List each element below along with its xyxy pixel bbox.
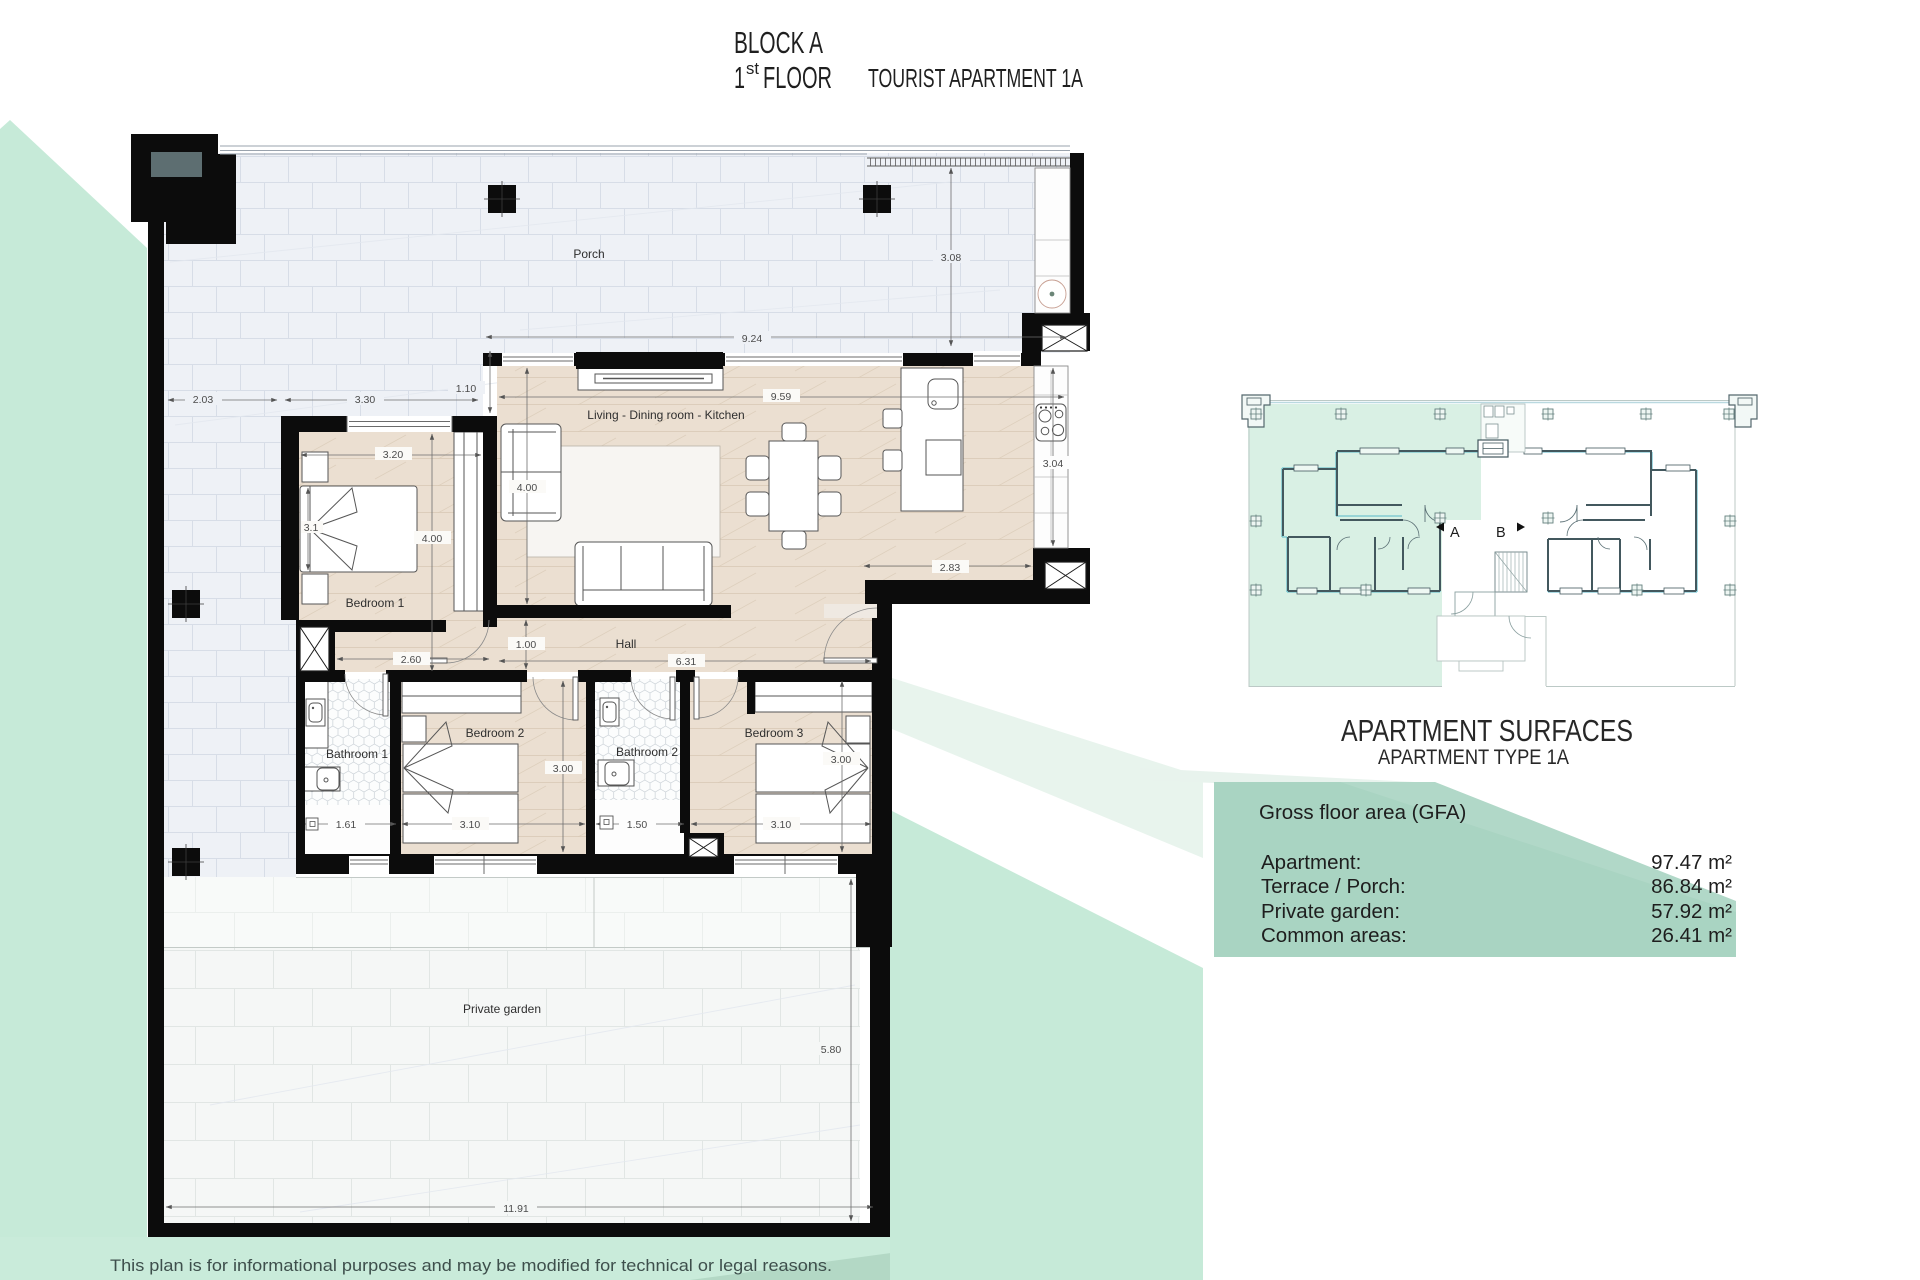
svg-text:This plan is for informational: This plan is for informational purposes … (110, 1256, 832, 1275)
svg-text:5.80: 5.80 (821, 1044, 842, 1056)
svg-text:1.50: 1.50 (627, 819, 648, 831)
svg-text:Apartment:: Apartment: (1261, 851, 1361, 874)
svg-text:st: st (746, 59, 759, 78)
svg-text:2.83: 2.83 (940, 562, 961, 574)
svg-text:2.60: 2.60 (401, 654, 422, 666)
svg-text:1.61: 1.61 (336, 819, 357, 831)
svg-text:Bedroom 2: Bedroom 2 (466, 726, 525, 740)
svg-text:Bathroom 2: Bathroom 2 (616, 745, 678, 759)
svg-text:B: B (1496, 525, 1506, 541)
svg-text:2.03: 2.03 (193, 394, 214, 406)
svg-text:Porch: Porch (573, 247, 604, 261)
svg-text:4.00: 4.00 (517, 482, 538, 494)
svg-text:6.31: 6.31 (676, 656, 697, 668)
svg-text:APARTMENT SURFACES: APARTMENT SURFACES (1341, 714, 1633, 748)
svg-text:86.84 m²: 86.84 m² (1651, 875, 1732, 898)
svg-text:APARTMENT TYPE 1A: APARTMENT TYPE 1A (1378, 745, 1570, 769)
svg-text:Bedroom 1: Bedroom 1 (346, 596, 405, 610)
svg-text:4.00: 4.00 (422, 533, 443, 545)
svg-text:Private garden: Private garden (463, 1002, 541, 1016)
svg-text:97.47 m²: 97.47 m² (1651, 851, 1732, 874)
svg-text:3.00: 3.00 (831, 754, 852, 766)
svg-text:57.92 m²: 57.92 m² (1651, 900, 1732, 923)
svg-text:1.00: 1.00 (516, 639, 537, 651)
svg-text:26.41 m²: 26.41 m² (1651, 924, 1732, 947)
svg-text:A: A (1450, 525, 1460, 541)
svg-text:TOURIST APARTMENT 1A: TOURIST APARTMENT 1A (868, 63, 1083, 93)
svg-text:Bedroom 3: Bedroom 3 (745, 726, 804, 740)
svg-text:Living - Dining room - Kitchen: Living - Dining room - Kitchen (587, 408, 744, 422)
svg-text:3.10: 3.10 (460, 819, 481, 831)
svg-text:3.1: 3.1 (304, 522, 319, 534)
svg-text:3.04: 3.04 (1043, 458, 1064, 470)
svg-text:3.10: 3.10 (771, 819, 792, 831)
svg-text:11.91: 11.91 (503, 1203, 529, 1215)
svg-text:Gross floor area (GFA): Gross floor area (GFA) (1259, 801, 1466, 824)
svg-text:3.08: 3.08 (941, 252, 962, 264)
svg-text:FLOOR: FLOOR (763, 60, 832, 95)
svg-text:3.20: 3.20 (383, 449, 404, 461)
svg-text:Hall: Hall (616, 637, 637, 651)
svg-text:1: 1 (734, 60, 745, 95)
svg-text:Common areas:: Common areas: (1261, 924, 1407, 947)
svg-text:9.59: 9.59 (771, 391, 792, 403)
svg-text:BLOCK A: BLOCK A (734, 25, 823, 60)
svg-text:3.30: 3.30 (355, 394, 376, 406)
svg-text:Bathroom 1: Bathroom 1 (326, 747, 388, 761)
svg-text:1.10: 1.10 (456, 383, 477, 395)
svg-text:9.24: 9.24 (742, 333, 763, 345)
svg-text:3.00: 3.00 (553, 763, 574, 775)
svg-text:Private garden:: Private garden: (1261, 900, 1400, 923)
svg-text:Terrace / Porch:: Terrace / Porch: (1261, 875, 1406, 898)
